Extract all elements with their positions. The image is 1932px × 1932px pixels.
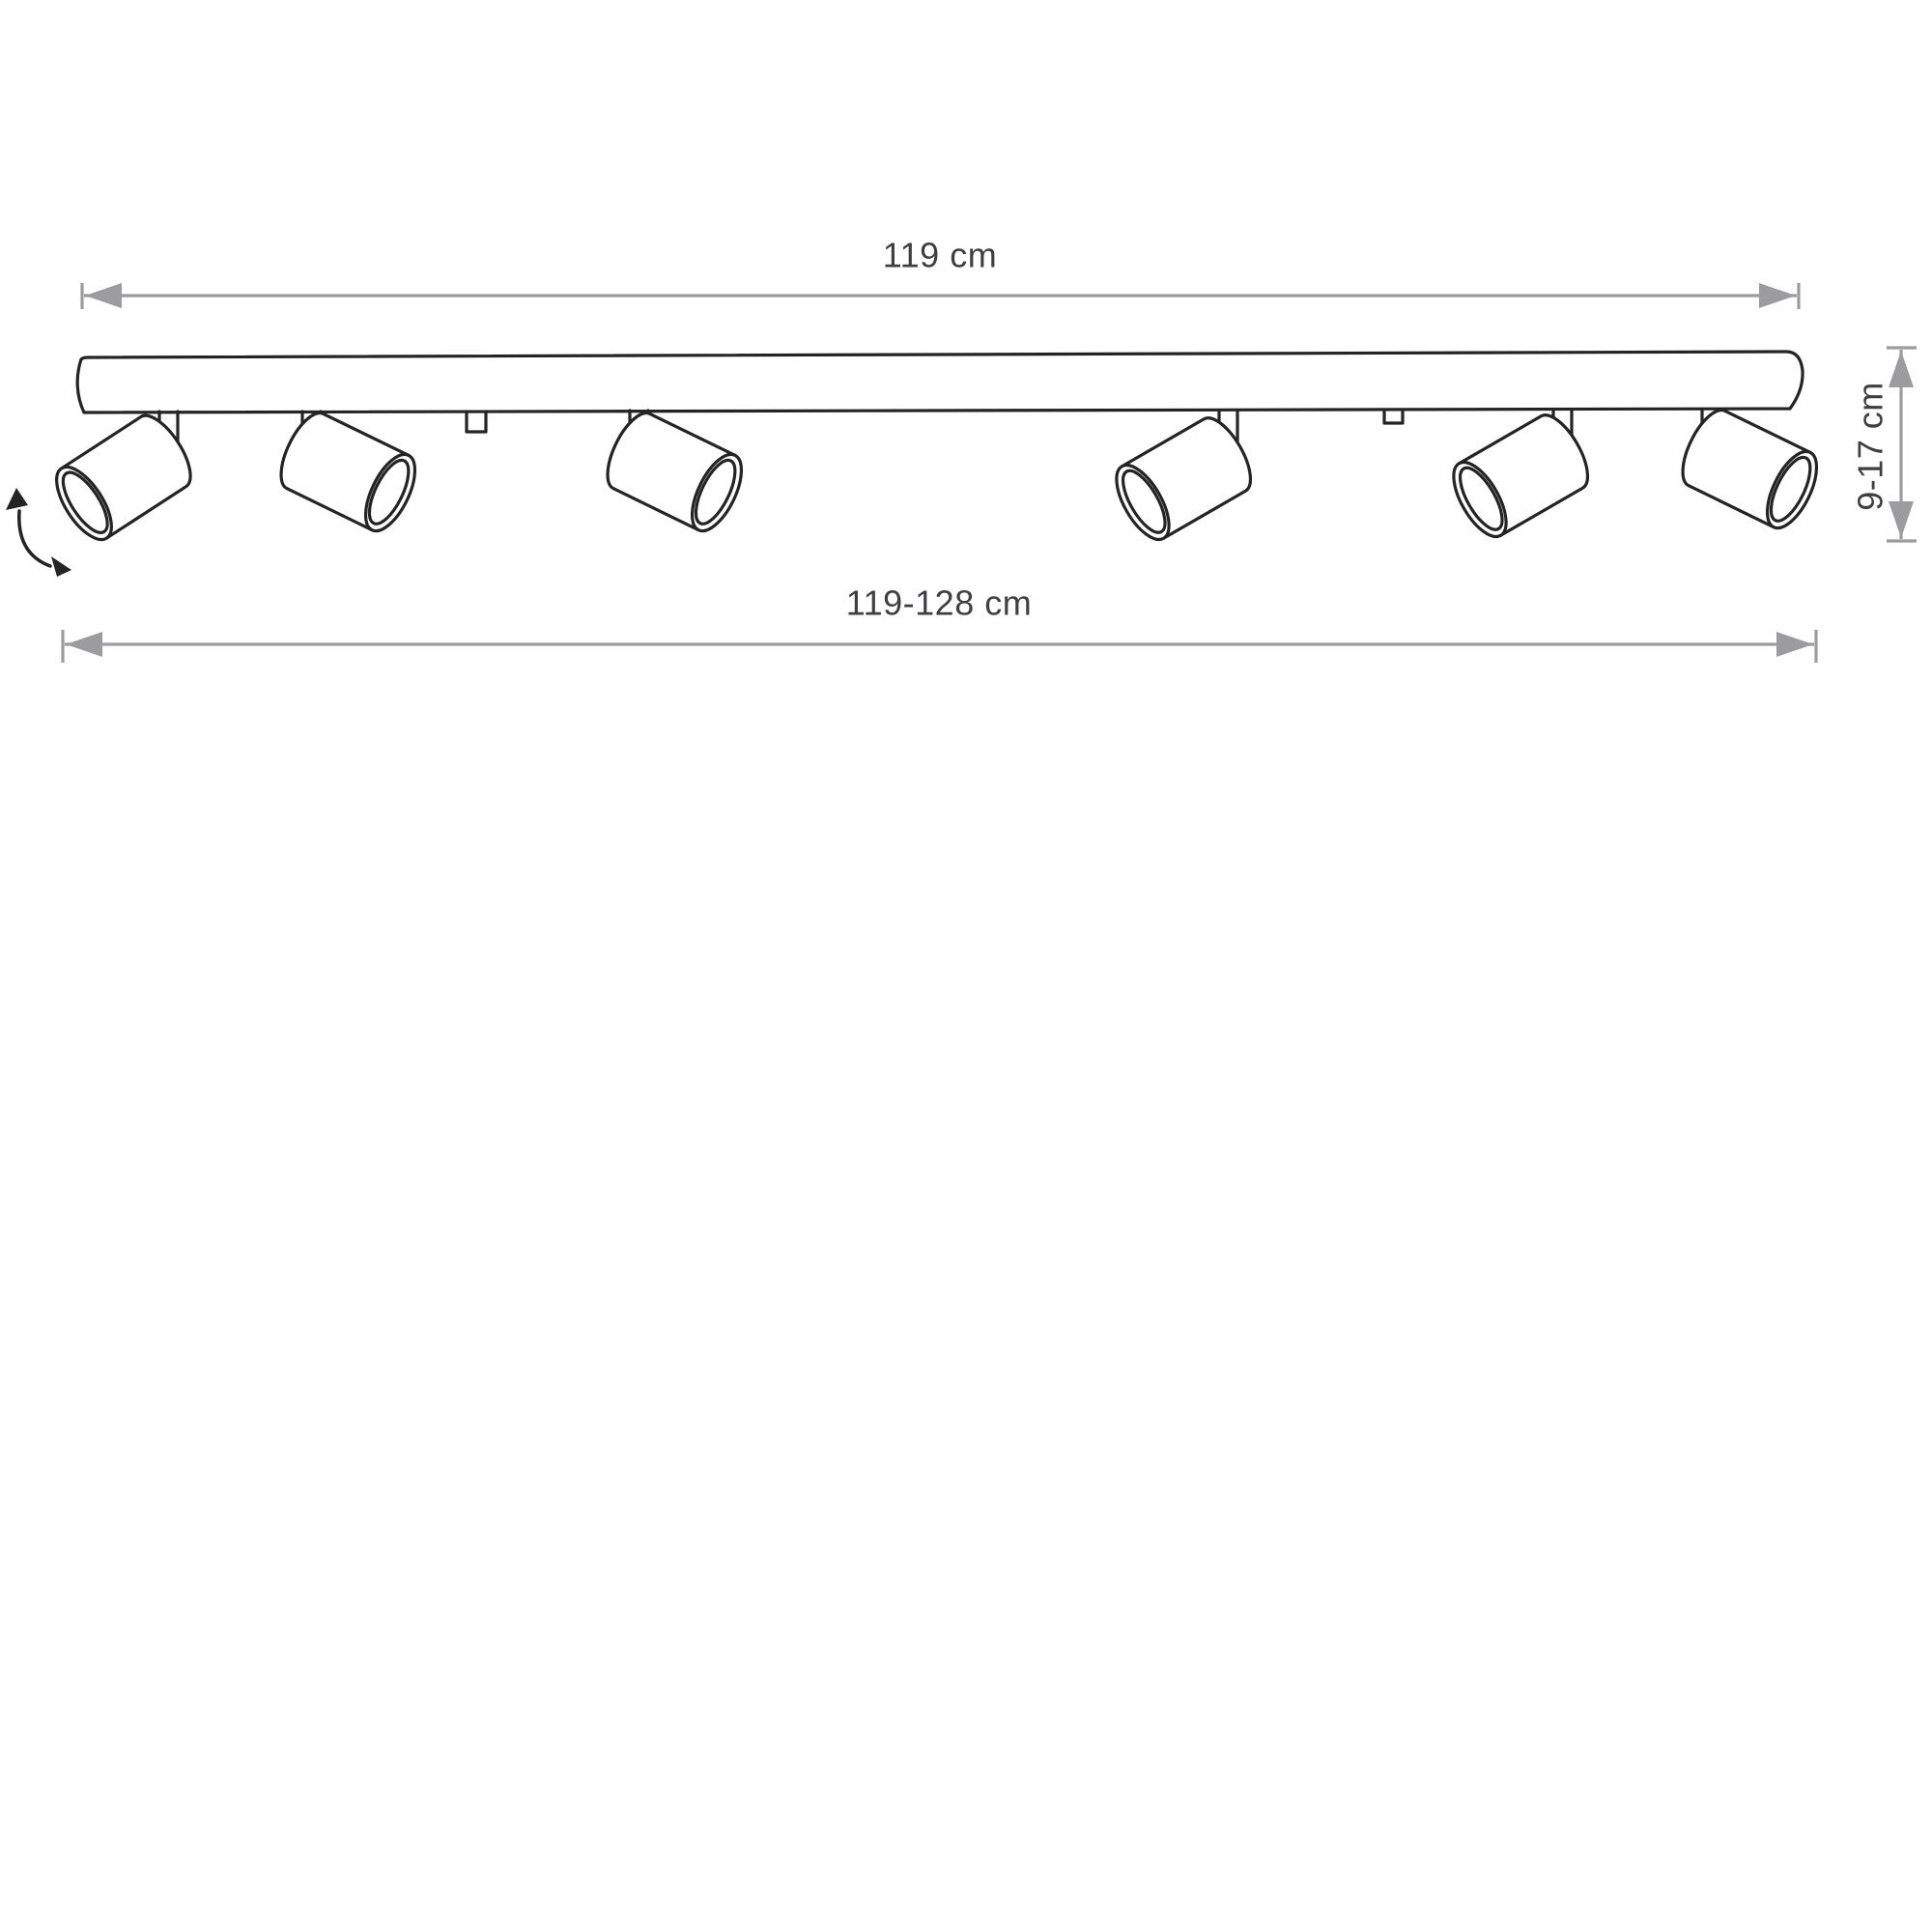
spotlight-4 [1106,411,1261,548]
spotlight-body [1673,404,1827,535]
spotlight-3 [598,407,752,538]
spotlight-1 [46,408,201,549]
mounting-tab-1 [467,412,486,432]
mounting-bar [77,352,1803,412]
spotlight-body [1443,408,1598,545]
dimension-drawing-page: 119 cm 119-128 [0,0,1932,1932]
spotlight-track-dimension-drawing: 119 cm 119-128 [0,0,1932,1932]
top-width-label: 119 cm [883,236,997,275]
spotlight-body [271,407,425,538]
arrow-right-icon [1759,283,1796,308]
arrow-left-icon [66,632,102,657]
arrow-up-icon [1889,351,1914,387]
arrow-down-icon [1889,501,1914,538]
bottom-width-label: 119-128 cm [846,583,1032,623]
spotlight-body [598,407,752,538]
height-label: 9-17 cm [1851,382,1890,511]
spotlight-6 [1673,404,1827,535]
arrow-left-icon [85,283,122,308]
top-width-dimension: 119 cm [82,236,1799,310]
arrow-right-icon [1776,632,1813,657]
spotlight-2 [271,407,425,538]
height-dimension: 9-17 cm [1851,348,1918,541]
mounting-tab-2 [1384,410,1403,423]
spotlight-5 [1443,408,1598,545]
bottom-width-dimension: 119-128 cm [63,583,1816,664]
